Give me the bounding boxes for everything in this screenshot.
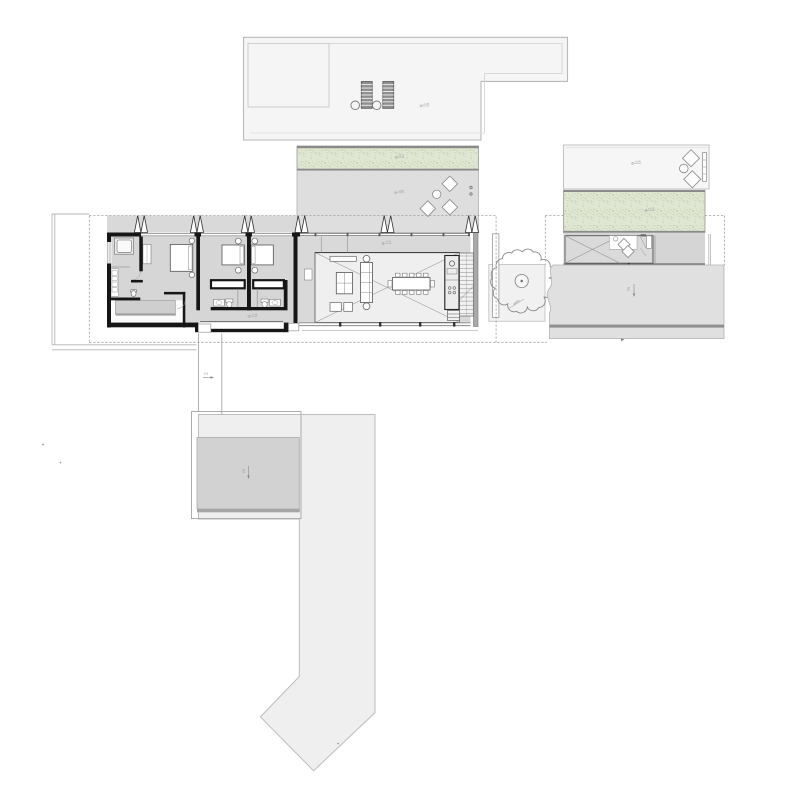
svg-text:5%: 5% bbox=[627, 286, 631, 291]
svg-text:1%: 1% bbox=[204, 372, 209, 376]
svg-text:+3,55: +3,55 bbox=[398, 190, 405, 193]
svg-text:+6,45: +6,45 bbox=[423, 103, 430, 106]
svg-text:+4,15: +4,15 bbox=[648, 208, 655, 211]
svg-text:+4,15: +4,15 bbox=[398, 155, 405, 158]
svg-text:1%: 1% bbox=[242, 468, 246, 473]
svg-text:+0,45: +0,45 bbox=[385, 241, 392, 244]
svg-text:+6,45: +6,45 bbox=[635, 161, 642, 164]
svg-text:+0,45: +0,45 bbox=[251, 314, 258, 317]
